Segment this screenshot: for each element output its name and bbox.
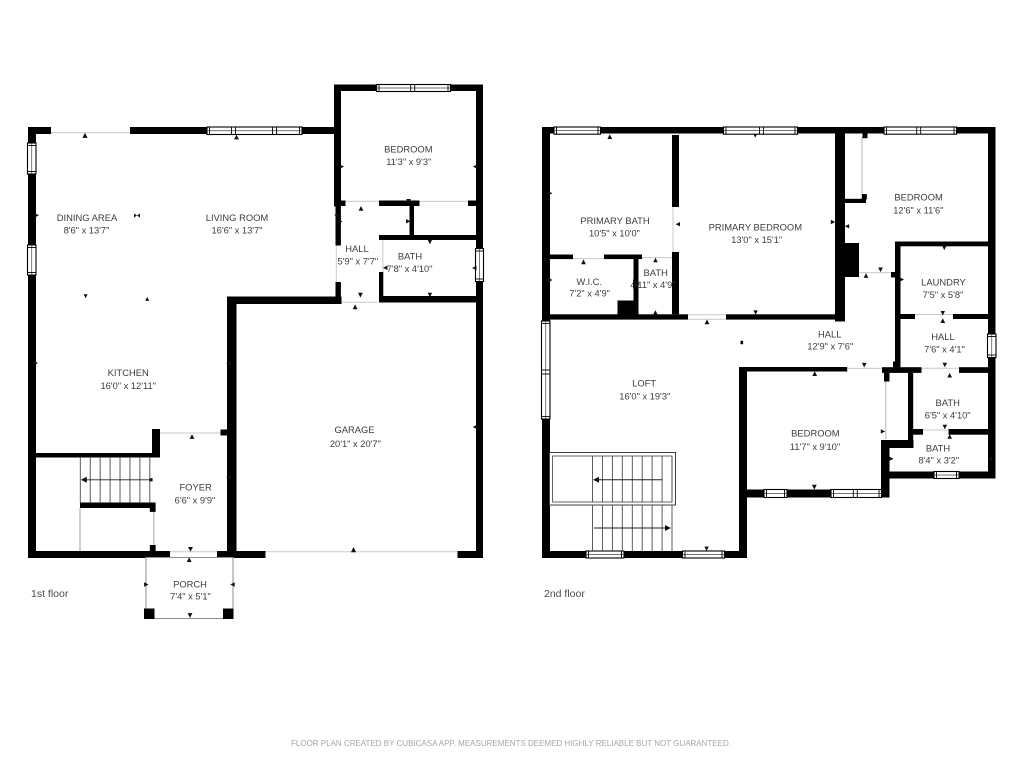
svg-text:16'0" x 12'11": 16'0" x 12'11" [100,381,155,391]
svg-text:7'6" x 4'1": 7'6" x 4'1" [924,344,965,354]
svg-text:LAUNDRY: LAUNDRY [921,277,966,288]
svg-text:11'3" x 9'3": 11'3" x 9'3" [386,157,431,167]
svg-text:13'0" x 15'1": 13'0" x 15'1" [731,235,782,245]
svg-text:FOYER: FOYER [179,482,212,493]
svg-text:5'9" x 7'7": 5'9" x 7'7" [337,257,378,267]
svg-text:12'9" x 7'6": 12'9" x 7'6" [807,342,853,352]
svg-text:7'5" x 5'8": 7'5" x 5'8" [923,290,964,300]
svg-text:PORCH: PORCH [173,578,207,589]
svg-text:LIVING ROOM: LIVING ROOM [206,212,269,223]
svg-text:FLOOR PLAN CREATED BY CUBICASA: FLOOR PLAN CREATED BY CUBICASA APP. MEAS… [291,739,731,748]
svg-text:7'4" x 5'1": 7'4" x 5'1" [170,591,211,601]
svg-text:2nd floor: 2nd floor [544,588,585,600]
svg-text:10'5" x 10'0": 10'5" x 10'0" [589,228,640,238]
svg-text:DINING AREA: DINING AREA [57,212,118,223]
svg-text:BATH: BATH [644,267,668,278]
svg-text:20'1" x 20'7": 20'1" x 20'7" [330,439,381,449]
svg-text:GARAGE: GARAGE [334,424,374,435]
svg-text:HALL: HALL [345,243,368,254]
svg-text:LOFT: LOFT [632,377,656,388]
svg-text:HALL: HALL [818,328,841,339]
svg-text:7'8" x 4'10": 7'8" x 4'10" [387,264,433,274]
svg-text:12'6" x 11'6": 12'6" x 11'6" [893,205,943,215]
svg-text:1st floor: 1st floor [31,588,69,600]
svg-text:PRIMARY BATH: PRIMARY BATH [580,215,649,226]
svg-text:BATH: BATH [936,397,960,408]
svg-text:7'2" x 4'9": 7'2" x 4'9" [569,289,610,299]
svg-text:HALL: HALL [931,331,954,342]
svg-text:6'6" x 9'9": 6'6" x 9'9" [175,496,216,506]
svg-text:BATH: BATH [926,442,950,453]
svg-text:16'6" x 13'7": 16'6" x 13'7" [212,225,263,235]
svg-text:W.I.C.: W.I.C. [577,276,603,287]
svg-text:BEDROOM: BEDROOM [791,427,840,438]
svg-text:BATH: BATH [398,251,422,262]
svg-text:6'5" x 4'10": 6'5" x 4'10" [925,410,971,420]
svg-text:BEDROOM: BEDROOM [894,192,943,203]
svg-text:11'7" x 9'10": 11'7" x 9'10" [790,442,840,452]
svg-text:KITCHEN: KITCHEN [108,367,149,378]
svg-text:PRIMARY BEDROOM: PRIMARY BEDROOM [709,222,803,233]
svg-text:16'0" x 19'3": 16'0" x 19'3" [619,392,670,402]
svg-text:8'4" x 3'2": 8'4" x 3'2" [918,456,959,466]
svg-text:8'6" x 13'7": 8'6" x 13'7" [64,225,110,235]
svg-text:BEDROOM: BEDROOM [384,144,433,155]
